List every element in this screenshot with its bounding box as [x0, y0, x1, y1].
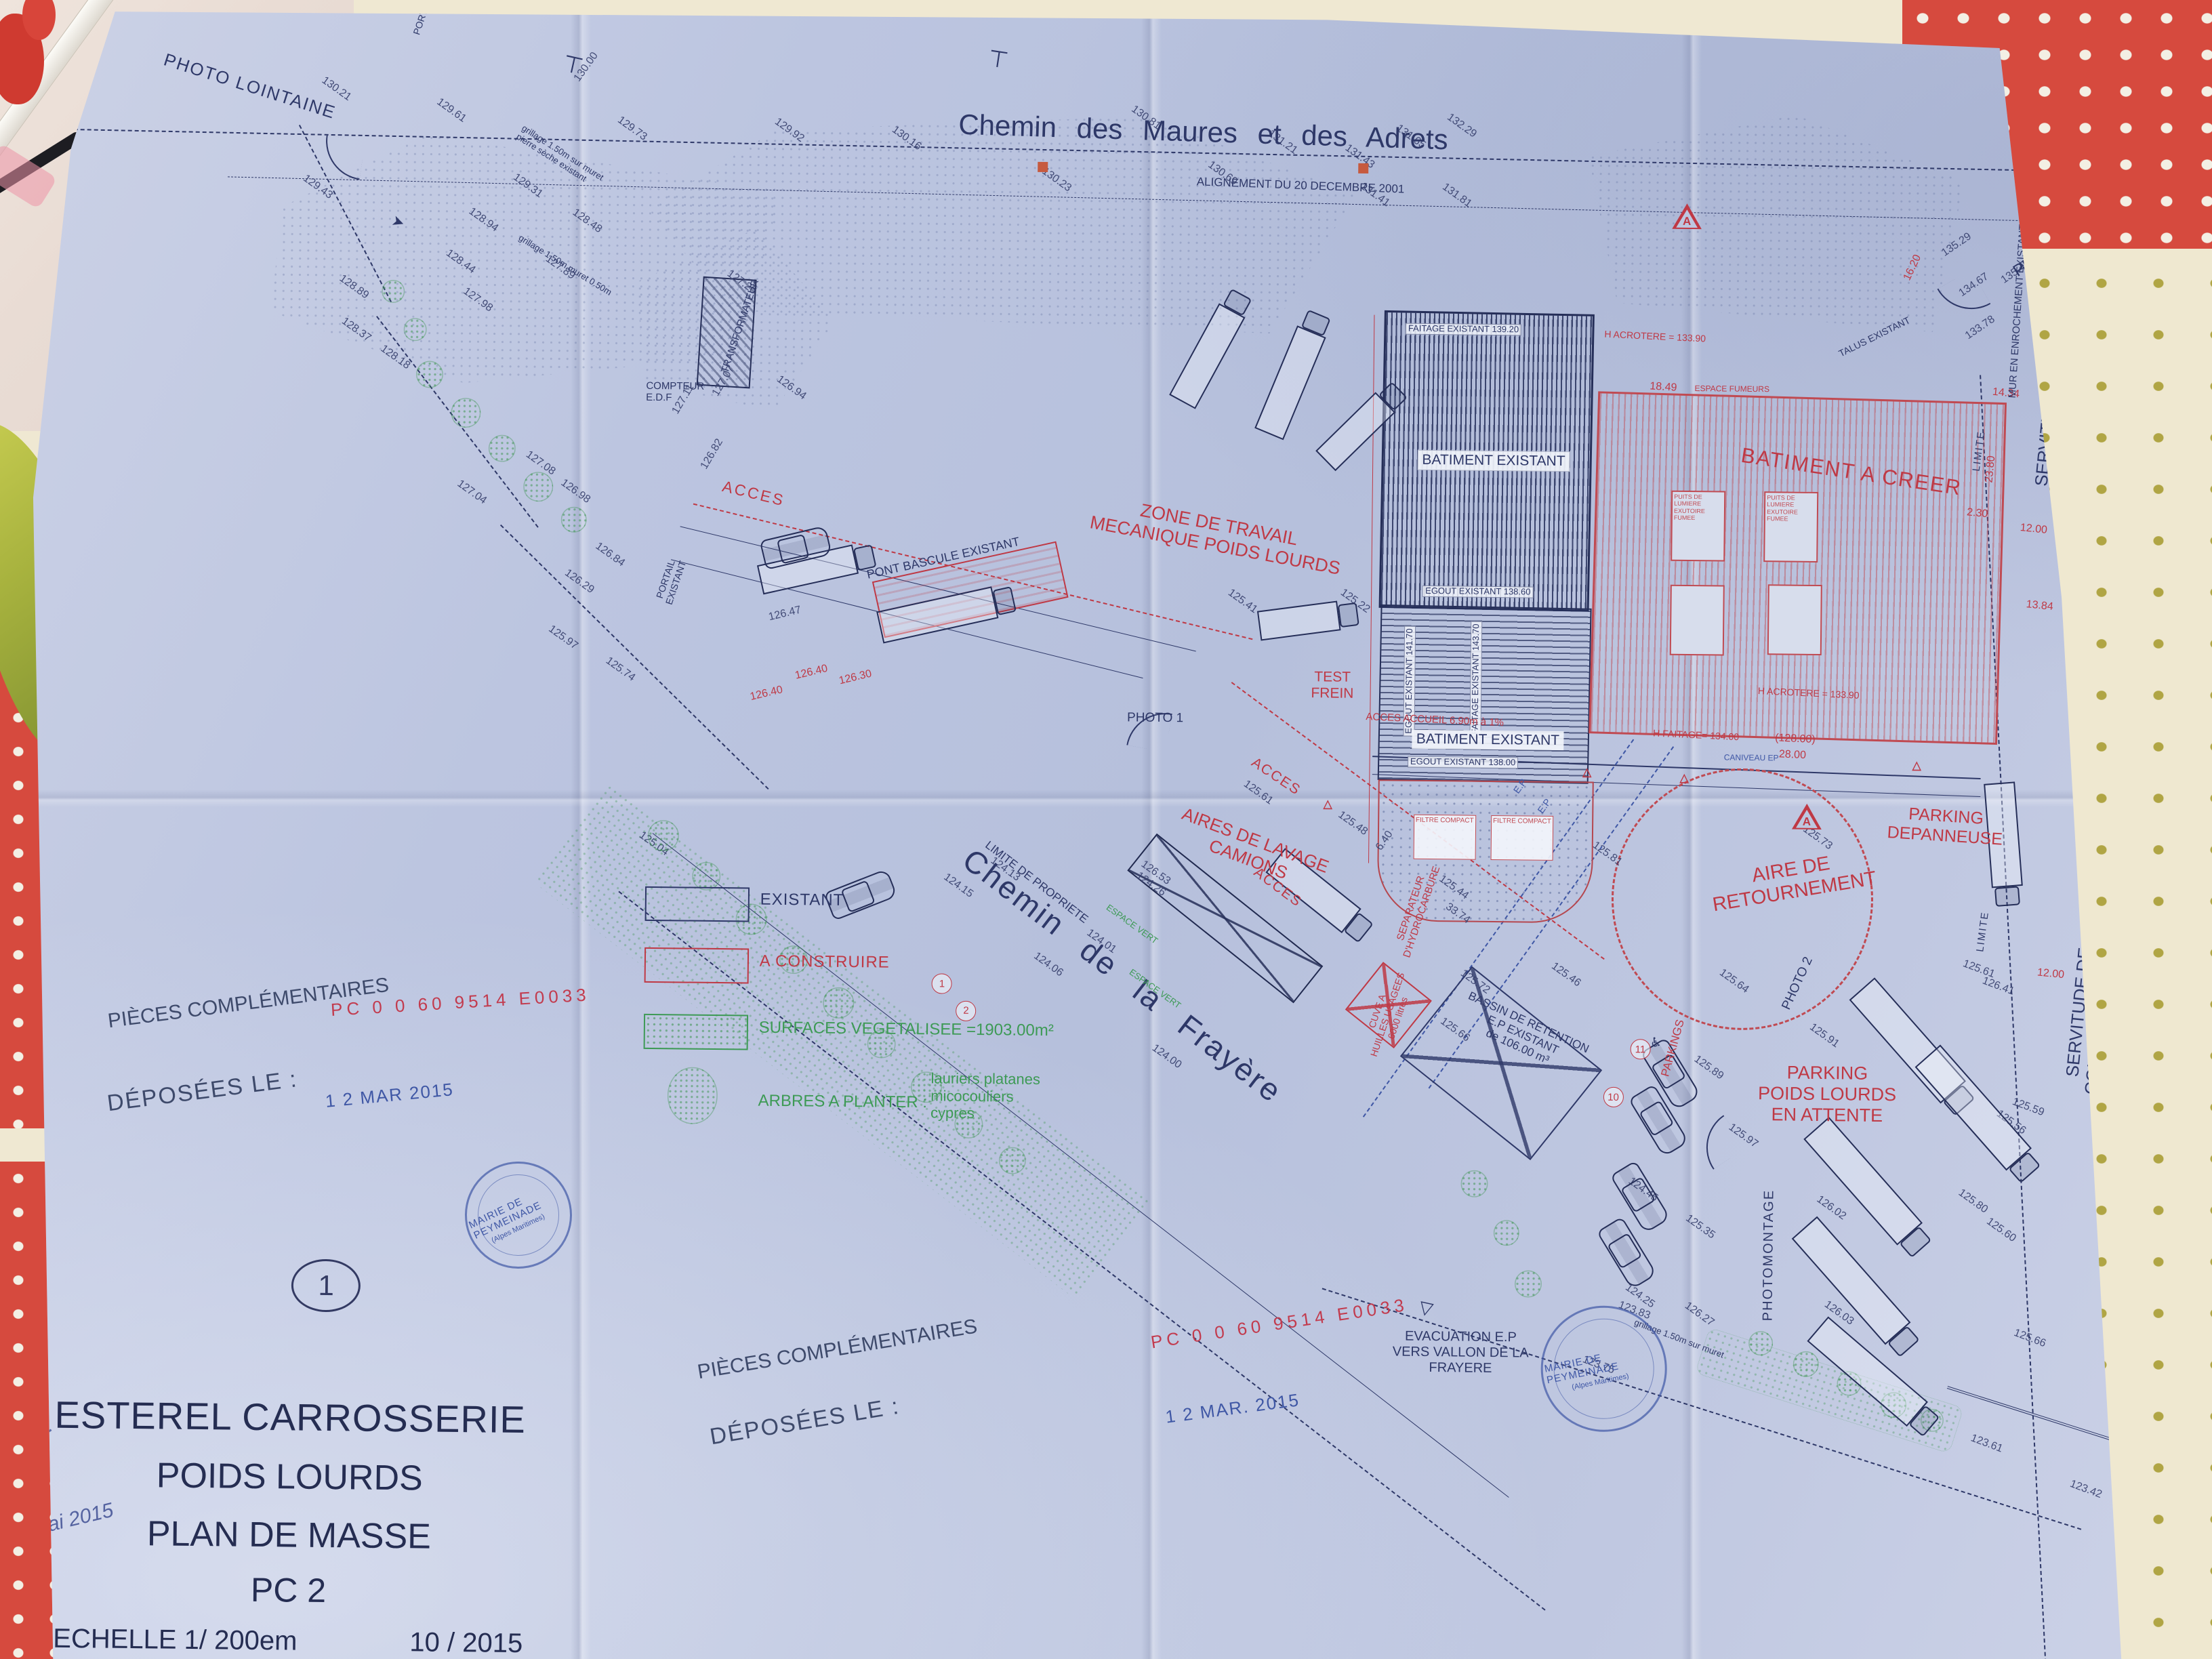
paper-sheet: PUITS DE LUMIERE EXUTOIRE FUMEE PUITS DE…	[0, 0, 2212, 1659]
label-batiment-existant-1: BATIMENT EXISTANT	[1417, 449, 1570, 471]
species-line: lauriers platanes	[930, 1070, 1040, 1088]
survey-tmark-icon: ⊤	[986, 45, 1010, 75]
label-egout-existant-1: EGOUT EXISTANT 138.60	[1422, 586, 1534, 598]
label-line: FRAYERE	[1392, 1359, 1528, 1376]
legend-swatch-surfaces	[644, 1014, 749, 1050]
legend-species-list: lauriers platanes micocouliers cypres	[930, 1070, 1040, 1123]
parking-slot-number: 10	[1603, 1087, 1623, 1107]
label-line: EN ATTENTE	[1758, 1104, 1896, 1126]
label-espace-fumeurs: ESPACE FUMEURS	[1694, 384, 1769, 394]
survey-marker-square	[1038, 162, 1048, 172]
title-date: 10 / 2015	[409, 1627, 523, 1659]
handicap-icon: ♿	[1650, 1036, 1662, 1051]
label-parking-poids-lourds: PARKING POIDS LOURDS EN ATTENTE	[1758, 1062, 1897, 1126]
label-line: FREIN	[1311, 685, 1353, 702]
species-line: cypres	[930, 1104, 1040, 1122]
label-line: COMPTEUR	[646, 380, 704, 392]
label-photomontage: PHOTOMONTAGE	[1760, 1189, 1777, 1322]
species-line: micocouliers	[930, 1087, 1040, 1105]
parking-slot-number: 11	[1630, 1039, 1650, 1059]
label-line: VERS VALLON DE LA	[1393, 1344, 1529, 1361]
label-evacuation: EVACUATION E.P VERS VALLON DE LA FRAYERE	[1392, 1328, 1529, 1376]
title-line-3: PLAN DE MASSE	[50, 1513, 529, 1558]
marker-a-letter: A	[1672, 215, 1702, 228]
title-line-1: ESTEREL CARROSSERIE	[51, 1393, 529, 1441]
title-scale: ECHELLE 1/ 200em	[53, 1624, 298, 1657]
title-block: ESTEREL CARROSSERIE POIDS LOURDS PLAN DE…	[49, 1393, 529, 1659]
label-line: POIDS LOURDS	[1758, 1083, 1896, 1105]
label-faitage-existant: FAITAGE EXISTANT 139.20	[1406, 323, 1521, 336]
legend-swatch-a-construire	[644, 947, 750, 983]
marker-a-letter: A	[1792, 815, 1822, 829]
title-line-2: POIDS LOURDS	[50, 1454, 529, 1500]
photo-marker-a: A	[1792, 804, 1822, 829]
parking-slot-number: 1	[932, 974, 952, 994]
legend-label-arbres: ARBRES A PLANTER :	[758, 1091, 927, 1111]
photo-marker-a: A	[1672, 203, 1702, 229]
label-batiment-existant-2: BATIMENT EXISTANT	[1412, 730, 1563, 750]
label-compteur-edf: COMPTEUR E.D.F	[646, 380, 704, 404]
legend-label-a-construire: A CONSTRUIRE	[760, 952, 890, 972]
legend-swatch-existant	[645, 886, 750, 922]
label-egout-existant-2: EGOUT EXISTANT 138.00	[1408, 756, 1519, 769]
label-parking-depanneuse: PARKING DEPANNEUSE	[1887, 803, 2005, 849]
label-line: E.D.F	[646, 392, 704, 404]
label-caniveau: CANIVEAU EP	[1724, 753, 1779, 763]
photo-of-site-plan: PUITS DE LUMIERE EXUTOIRE FUMEE PUITS DE…	[0, 0, 2212, 1659]
survey-marker-square	[1358, 163, 1368, 173]
site-plan-drawing: PUITS DE LUMIERE EXUTOIRE FUMEE PUITS DE…	[0, 0, 2212, 1659]
parking-slot-number: 2	[956, 1000, 976, 1021]
label-line: EVACUATION E.P	[1393, 1328, 1529, 1345]
legend-label-surfaces: SURFACES VEGETALISEE =1903.00m²	[759, 1019, 1054, 1040]
label-line: PARKING	[1758, 1062, 1896, 1084]
legend-label-existant: EXISTANT	[760, 890, 844, 910]
label-test-frein: TEST FREIN	[1311, 669, 1354, 702]
sheet-number: 1	[318, 1269, 334, 1302]
label-line: TEST	[1311, 669, 1354, 686]
title-line-4: PC 2	[49, 1568, 528, 1612]
